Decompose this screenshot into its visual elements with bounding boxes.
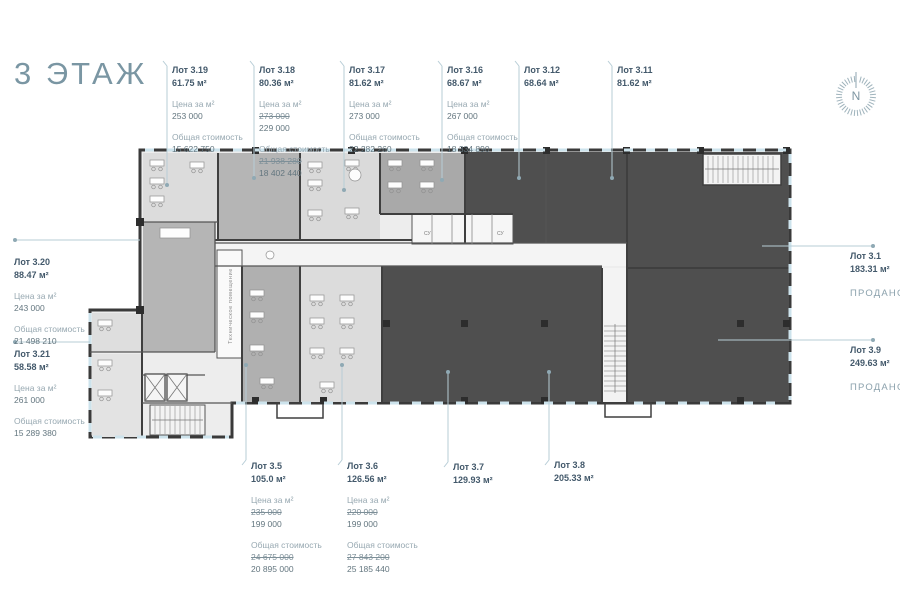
- lot-label-3-18[interactable]: Лот 3.18 80.36 м² Цена за м² 273 000 229…: [259, 64, 351, 179]
- lot-label-3-20[interactable]: Лот 3.20 88.47 м² Цена за м² 243 000 Общ…: [14, 256, 106, 348]
- total-value: 18 334 890: [447, 144, 539, 156]
- technical-room-label: Техническое помещение: [228, 268, 234, 344]
- lot-area: 249.63 м²: [850, 357, 900, 370]
- lot-label-3-5[interactable]: Лот 3.5 105.0 м² Цена за м² 235 000 199 …: [251, 460, 343, 575]
- price-value: 243 000: [14, 303, 106, 315]
- price-old-value: 235 000: [251, 507, 343, 519]
- price-value: 199 000: [251, 519, 343, 531]
- lot-area: 105.0 м²: [251, 473, 343, 486]
- total-old-value: 27 843 200: [347, 552, 439, 564]
- lot-name: Лот 3.9: [850, 344, 900, 357]
- price-per-m2-label: Цена за м²: [172, 99, 264, 111]
- sold-badge: ПРОДАНО: [850, 381, 900, 394]
- price-value: 229 000: [259, 123, 351, 135]
- lot-name: Лот 3.18: [259, 64, 351, 77]
- lot-name: Лот 3.5: [251, 460, 343, 473]
- restrooms: [412, 214, 513, 244]
- lot-label-3-11[interactable]: Лот 3.11 81.62 м²: [617, 64, 709, 90]
- total-cost-label: Общая стоимость: [349, 132, 441, 144]
- lot-name: Лот 3.12: [524, 64, 616, 77]
- lot-name: Лот 3.11: [617, 64, 709, 77]
- total-value: 25 185 440: [347, 564, 439, 576]
- stairs-wing: [150, 405, 205, 435]
- total-cost-label: Общая стоимость: [251, 540, 343, 552]
- lot-label-3-19[interactable]: Лот 3.19 61.75 м² Цена за м² 253 000 Общ…: [172, 64, 264, 156]
- stairs-top-right: [703, 154, 781, 185]
- lot-label-3-8[interactable]: Лот 3.8 205.33 м²: [554, 459, 646, 485]
- lot-area: 81.62 м²: [349, 77, 441, 90]
- price-per-m2-label: Цена за м²: [14, 383, 106, 395]
- price-value: 261 000: [14, 395, 106, 407]
- total-value: 20 895 000: [251, 564, 343, 576]
- total-cost-label: Общая стоимость: [259, 144, 351, 156]
- room-lot-3-6[interactable]: [300, 266, 382, 402]
- compass-north-letter: N: [852, 89, 861, 103]
- lot-area: 205.33 м²: [554, 472, 646, 485]
- room-lot-3-7[interactable]: [382, 266, 492, 402]
- price-value: 273 000: [349, 111, 441, 123]
- total-value: 18 402 440: [259, 168, 351, 180]
- lot-area: 68.64 м²: [524, 77, 616, 90]
- lot-name: Лот 3.6: [347, 460, 439, 473]
- lot-name: Лот 3.1: [850, 250, 900, 263]
- wc-label: СУ: [424, 231, 431, 237]
- total-cost-label: Общая стоимость: [347, 540, 439, 552]
- total-old-value: 24 675 000: [251, 552, 343, 564]
- price-value: 199 000: [347, 519, 439, 531]
- room-lot-3-20[interactable]: [143, 222, 215, 352]
- floor-plan-page: 3 ЭТАЖ: [0, 0, 900, 604]
- price-per-m2-label: Цена за м²: [349, 99, 441, 111]
- price-per-m2-label: Цена за м²: [14, 291, 106, 303]
- lot-area: 183.31 м²: [850, 263, 900, 276]
- room-lot-3-9[interactable]: [627, 268, 789, 402]
- total-value: 15 622 750: [172, 144, 264, 156]
- entrance-south-east: [605, 403, 651, 417]
- total-value: 22 282 260: [349, 144, 441, 156]
- lot-label-3-21[interactable]: Лот 3.21 58.58 м² Цена за м² 261 000 Общ…: [14, 348, 106, 440]
- wc-label: СУ: [497, 231, 504, 237]
- total-cost-label: Общая стоимость: [14, 324, 106, 336]
- lot-label-3-17[interactable]: Лот 3.17 81.62 м² Цена за м² 273 000 Общ…: [349, 64, 441, 156]
- lot-label-3-6[interactable]: Лот 3.6 126.56 м² Цена за м² 220 000 199…: [347, 460, 439, 575]
- price-per-m2-label: Цена за м²: [447, 99, 539, 111]
- sold-badge: ПРОДАНО: [850, 287, 900, 300]
- lot-name: Лот 3.7: [453, 461, 545, 474]
- lot-name: Лот 3.19: [172, 64, 264, 77]
- lot-area: 81.62 м²: [617, 77, 709, 90]
- room-lot-3-8[interactable]: [492, 266, 602, 402]
- room-lot-3-11[interactable]: [546, 152, 627, 243]
- price-old-value: 220 000: [347, 507, 439, 519]
- lot-name: Лот 3.8: [554, 459, 646, 472]
- lot-label-3-9[interactable]: Лот 3.9 249.63 м² ПРОДАНО: [850, 344, 900, 394]
- lot-area: 129.93 м²: [453, 474, 545, 487]
- lot-area: 61.75 м²: [172, 77, 264, 90]
- lot-area: 126.56 м²: [347, 473, 439, 486]
- total-old-value: 21 938 280: [259, 156, 351, 168]
- lot-label-3-12[interactable]: Лот 3.12 68.64 м²: [524, 64, 616, 90]
- lot-area: 58.58 м²: [14, 361, 106, 374]
- lot-label-3-1[interactable]: Лот 3.1 183.31 м² ПРОДАНО: [850, 250, 900, 300]
- lot-label-3-7[interactable]: Лот 3.7 129.93 м²: [453, 461, 545, 487]
- price-per-m2-label: Цена за м²: [259, 99, 351, 111]
- stairwell-center: [602, 268, 627, 402]
- price-per-m2-label: Цена за м²: [347, 495, 439, 507]
- price-value: 253 000: [172, 111, 264, 123]
- lot-name: Лот 3.21: [14, 348, 106, 361]
- lot-area: 80.36 м²: [259, 77, 351, 90]
- corridor: [215, 243, 627, 266]
- lot-name: Лот 3.17: [349, 64, 441, 77]
- total-cost-label: Общая стоимость: [447, 132, 539, 144]
- price-old-value: 273 000: [259, 111, 351, 123]
- price-value: 267 000: [447, 111, 539, 123]
- total-cost-label: Общая стоимость: [172, 132, 264, 144]
- lot-area: 88.47 м²: [14, 269, 106, 282]
- price-per-m2-label: Цена за м²: [251, 495, 343, 507]
- total-value: 15 289 380: [14, 428, 106, 440]
- total-value: 21 498 210: [14, 336, 106, 348]
- lot-name: Лот 3.20: [14, 256, 106, 269]
- total-cost-label: Общая стоимость: [14, 416, 106, 428]
- entrance-south-west: [277, 403, 323, 418]
- compass-icon: N: [826, 66, 886, 126]
